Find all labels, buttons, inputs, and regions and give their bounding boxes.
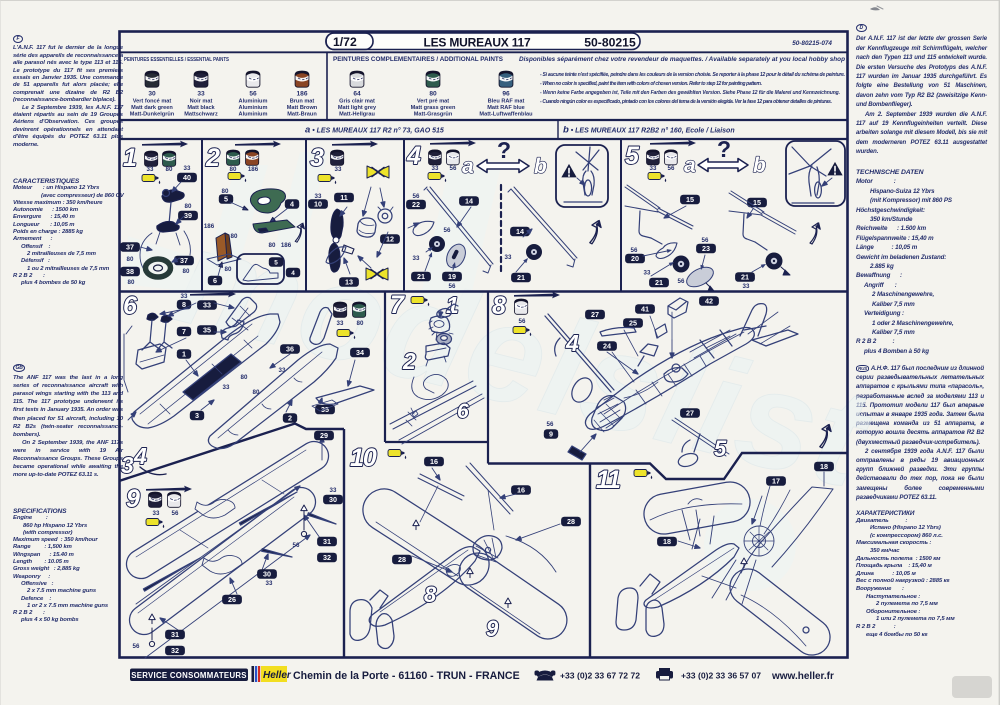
svg-text:3: 3 <box>195 411 199 420</box>
svg-text:31: 31 <box>171 630 179 639</box>
svg-text:33: 33 <box>266 580 273 587</box>
svg-text:6: 6 <box>123 292 138 320</box>
svg-text:56: 56 <box>519 318 526 325</box>
svg-text:+33 (0)2 33 67 72 72: +33 (0)2 33 67 72 72 <box>560 671 640 681</box>
svg-text:33: 33 <box>330 487 337 494</box>
svg-text:16: 16 <box>430 457 438 466</box>
svg-text:34: 34 <box>356 348 364 357</box>
svg-text:80: 80 <box>253 389 260 396</box>
svg-text:2: 2 <box>288 414 292 423</box>
svg-text:30: 30 <box>329 495 337 504</box>
svg-text:www.heller.fr: www.heller.fr <box>771 671 834 682</box>
svg-text:29: 29 <box>320 431 328 440</box>
svg-text:35: 35 <box>321 405 329 414</box>
svg-text:2: 2 <box>402 348 416 374</box>
svg-text:33: 33 <box>203 301 211 310</box>
svg-text:41: 41 <box>641 305 649 314</box>
svg-text:35: 35 <box>203 326 211 335</box>
svg-text:25: 25 <box>629 319 637 328</box>
svg-text:27: 27 <box>686 409 694 418</box>
svg-text:11: 11 <box>596 466 620 494</box>
svg-text:6: 6 <box>457 400 469 423</box>
svg-text:27: 27 <box>591 310 599 319</box>
svg-text:17: 17 <box>772 477 780 486</box>
svg-text:8: 8 <box>424 582 437 607</box>
svg-text:9: 9 <box>486 616 499 641</box>
svg-text:7: 7 <box>390 291 405 319</box>
svg-text:32: 32 <box>171 646 179 655</box>
svg-text:36: 36 <box>286 345 294 354</box>
svg-text:80: 80 <box>241 374 248 381</box>
svg-text:5: 5 <box>714 436 727 461</box>
svg-text:56: 56 <box>172 510 179 517</box>
svg-text:3: 3 <box>121 452 134 478</box>
svg-text:Heller: Heller <box>263 670 292 681</box>
svg-text:26: 26 <box>228 595 236 604</box>
svg-text:18: 18 <box>663 537 671 546</box>
svg-text:33: 33 <box>337 320 344 327</box>
svg-text:24: 24 <box>603 342 611 351</box>
svg-text:8: 8 <box>492 292 506 320</box>
svg-text:56: 56 <box>293 542 300 549</box>
svg-text:33: 33 <box>223 384 230 391</box>
svg-text:Chemin de la Porte - 61160 - T: Chemin de la Porte - 61160 - TRUN - FRAN… <box>293 670 520 682</box>
svg-text:56: 56 <box>547 421 554 428</box>
svg-text:31: 31 <box>323 537 331 546</box>
svg-text:42: 42 <box>705 297 713 306</box>
svg-text:18: 18 <box>820 462 828 471</box>
svg-text:1: 1 <box>182 350 186 359</box>
svg-text:80: 80 <box>357 320 364 327</box>
svg-text:33: 33 <box>153 510 160 517</box>
svg-text:4: 4 <box>133 443 147 469</box>
svg-text:56: 56 <box>133 643 140 650</box>
svg-text:SERVICE CONSOMMATEURS: SERVICE CONSOMMATEURS <box>131 671 247 680</box>
svg-text:30: 30 <box>263 570 271 579</box>
svg-text:7: 7 <box>182 327 186 336</box>
svg-text:16: 16 <box>517 486 525 495</box>
svg-text:10: 10 <box>350 444 377 472</box>
svg-text:28: 28 <box>398 555 406 564</box>
svg-text:9: 9 <box>126 485 140 513</box>
svg-text:9: 9 <box>549 430 553 439</box>
svg-text:33: 33 <box>181 293 188 300</box>
svg-text:28: 28 <box>567 517 575 526</box>
svg-text:4: 4 <box>565 330 579 356</box>
svg-text:32: 32 <box>323 553 331 562</box>
svg-text:+33 (0)2 33 36 57 07: +33 (0)2 33 36 57 07 <box>681 671 761 681</box>
